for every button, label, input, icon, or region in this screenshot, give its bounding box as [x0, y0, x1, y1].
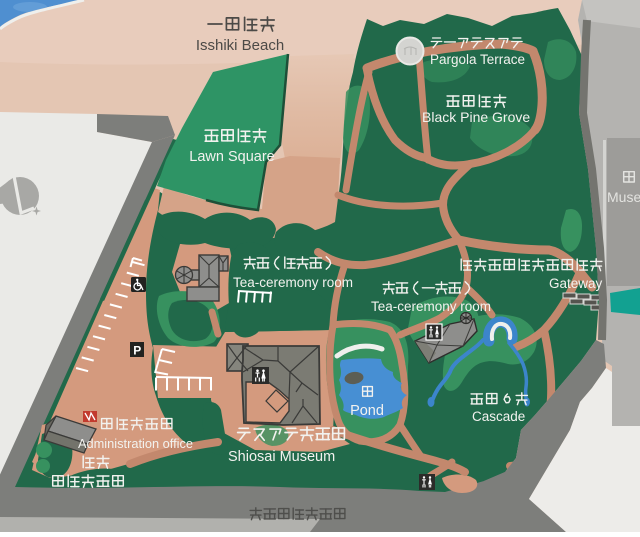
svg-text:Muse: Muse — [607, 189, 640, 205]
svg-text:Cascade: Cascade — [472, 409, 525, 424]
svg-text:Pargola Terrace: Pargola Terrace — [430, 52, 525, 67]
svg-text:Isshiki Beach: Isshiki Beach — [196, 37, 284, 54]
svg-text:Tea-ceremony room: Tea-ceremony room — [233, 275, 353, 290]
svg-text:Administration office: Administration office — [78, 436, 193, 451]
svg-text:Tea-ceremony room: Tea-ceremony room — [371, 299, 491, 314]
svg-text:Black Pine Grove: Black Pine Grove — [422, 109, 530, 125]
svg-text:Gateway: Gateway — [549, 276, 603, 291]
svg-text:Lawn Square: Lawn Square — [189, 149, 274, 165]
svg-text:P: P — [133, 344, 141, 358]
svg-text:Pond: Pond — [350, 403, 384, 419]
svg-text:Shiosai Museum: Shiosai Museum — [228, 449, 335, 465]
